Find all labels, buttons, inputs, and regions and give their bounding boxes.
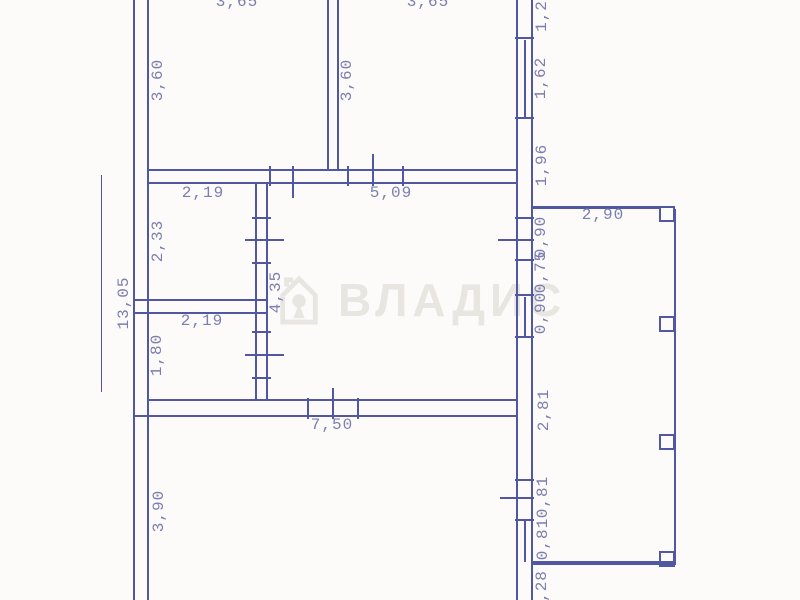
wall-line bbox=[524, 521, 526, 562]
wall-line bbox=[135, 299, 268, 301]
floor-plan-image: ВЛАДИС 3,653,653,603,601,21,621,962,195,… bbox=[0, 0, 800, 600]
dimension-label: 7,50 bbox=[311, 417, 353, 433]
terrace-pillar bbox=[659, 316, 675, 332]
dimension-label: 1,62 bbox=[533, 57, 549, 99]
wall-line bbox=[327, 0, 329, 171]
dimension-label: 2,90 bbox=[582, 207, 624, 223]
dimension-label: 0,81 bbox=[535, 518, 551, 560]
dimension-tick bbox=[245, 239, 284, 241]
dimension-label: 1,2 bbox=[534, 0, 550, 32]
dimension-label: 2,19 bbox=[181, 313, 223, 329]
dimension-label: 3,60 bbox=[339, 59, 355, 101]
wall-line bbox=[255, 183, 257, 401]
dimension-tick bbox=[307, 398, 309, 419]
dimension-tick bbox=[515, 336, 534, 338]
watermark: ВЛАДИС bbox=[276, 274, 566, 326]
dimension-label: 2,19 bbox=[182, 185, 224, 201]
wall-line bbox=[533, 561, 676, 565]
wall-line bbox=[674, 209, 676, 564]
dimension-tick bbox=[372, 154, 374, 186]
wall-line bbox=[101, 175, 102, 392]
dimension-label: 13,05 bbox=[116, 276, 132, 329]
dimension-label: 3,60 bbox=[150, 59, 166, 101]
dimension-tick bbox=[347, 166, 349, 186]
dimension-tick bbox=[515, 37, 534, 39]
dimension-label: 3,65 bbox=[407, 0, 449, 10]
dimension-tick bbox=[515, 519, 534, 521]
dimension-label: 0,81 bbox=[535, 476, 551, 518]
dimension-tick bbox=[402, 166, 404, 186]
dimension-tick bbox=[515, 117, 534, 119]
dimension-label: 5,09 bbox=[370, 185, 412, 201]
dimension-label: 2,81 bbox=[536, 389, 552, 431]
dimension-label: 1,80 bbox=[149, 334, 165, 376]
dimension-tick bbox=[292, 166, 294, 198]
dimension-label: 1,96 bbox=[534, 144, 550, 186]
dimension-tick bbox=[252, 377, 271, 379]
dimension-tick bbox=[515, 479, 534, 481]
dimension-tick bbox=[332, 388, 334, 419]
dimension-tick bbox=[252, 262, 271, 264]
dimension-tick bbox=[500, 497, 534, 499]
dimension-label: ,28 bbox=[534, 570, 550, 600]
dimension-tick bbox=[252, 217, 271, 219]
dimension-tick bbox=[357, 398, 359, 419]
dimension-tick bbox=[252, 331, 271, 333]
wall-line bbox=[516, 0, 518, 600]
wall-line bbox=[148, 169, 518, 171]
dimension-label: 0,75 bbox=[533, 251, 549, 293]
dimension-label: 2,33 bbox=[150, 220, 166, 262]
dimension-label: 3,65 bbox=[216, 0, 258, 10]
terrace-pillar bbox=[659, 206, 675, 222]
dimension-tick bbox=[498, 239, 534, 241]
wall-line bbox=[524, 297, 526, 337]
terrace-pillar bbox=[659, 434, 675, 450]
dimension-label: 4,35 bbox=[268, 271, 284, 313]
dimension-tick bbox=[269, 166, 271, 186]
dimension-label: 3,90 bbox=[151, 490, 167, 532]
dimension-label: 0,90 bbox=[533, 292, 549, 334]
wall-line bbox=[524, 40, 526, 118]
dimension-tick bbox=[245, 354, 284, 356]
